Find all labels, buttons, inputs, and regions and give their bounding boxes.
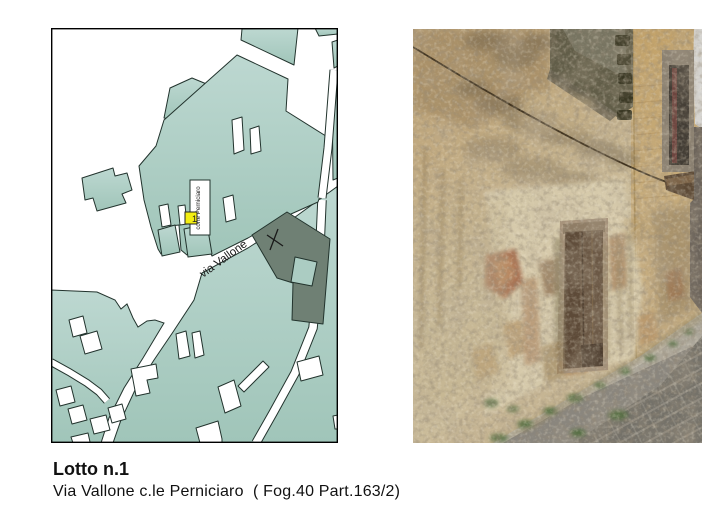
svg-text:1: 1 [192, 214, 197, 224]
